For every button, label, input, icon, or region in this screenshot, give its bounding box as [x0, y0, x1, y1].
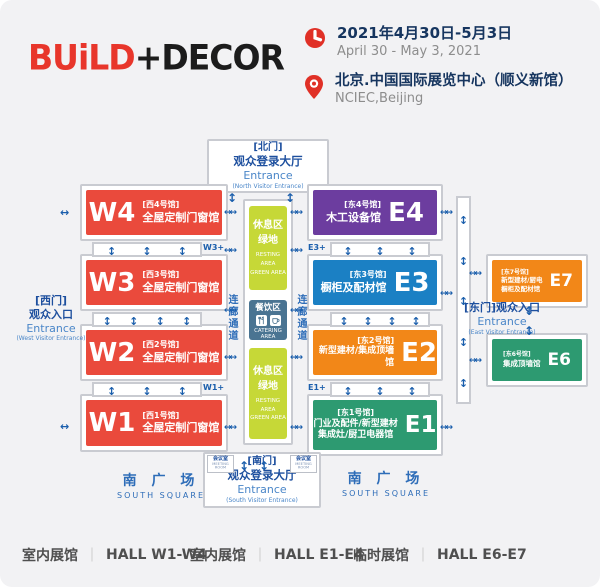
arrow-vertical-icon [524, 322, 534, 338]
hall-block-w1: W1 [西1号馆]全屋定制门窗馆 [86, 400, 222, 446]
arrow-vertical-icon [156, 310, 165, 329]
hall-block-e1: [东1号馆]门业及配件/新型建材集成灶/厨卫电器馆 E1 [313, 400, 437, 450]
hall-block-e4: [东4号馆]木工设备馆 E4 [313, 190, 437, 235]
corridor-strip-e4-e3 [330, 242, 430, 257]
rest-area-zh1: 休息区 [253, 218, 283, 233]
south-square-west: 南 广 场 SOUTH SQUARE [116, 470, 206, 500]
south-square-zh: 南 广 场 [116, 470, 206, 490]
hall-name: 橱柜及配材馆 [321, 281, 387, 295]
arrow-horizontal-icon [290, 202, 301, 218]
hall-name-line2: 橱柜及配材馆 [501, 285, 542, 293]
arrow-horizontal-icon [224, 202, 235, 218]
logo-build-text: BUiLD [28, 37, 135, 78]
event-venue-en: NCIEC,Beijing [335, 90, 573, 108]
meeting-room-left: 会议室 MEETING ROOM [207, 455, 234, 473]
rest-area-en2: GREEN AREA [250, 414, 286, 423]
arrow-horizontal-icon [440, 417, 451, 433]
cup-icon [270, 315, 281, 326]
link-label-w1: W1+ [203, 383, 224, 392]
hall-tag: [东1号馆] [313, 408, 397, 418]
corridor-strip-e3-e2 [330, 312, 430, 327]
hall-block-w3: W3 [西3号馆]全屋定制门窗馆 [86, 260, 222, 305]
arrow-vertical-icon [178, 240, 187, 259]
hall-name: 新型建材/集成顶墙馆 [313, 346, 394, 369]
corridor-strip-w4-w3 [92, 242, 202, 257]
east-gate-label: [东门]观众入口 [444, 301, 560, 315]
hall-tag: [东4号馆] [326, 200, 381, 210]
hall-code: W3 [89, 270, 136, 296]
hall-tag: [西2号馆] [142, 340, 219, 350]
arrow-horizontal-icon [469, 350, 480, 366]
arrow-vertical-icon [142, 380, 151, 399]
arrow-vertical-icon [375, 240, 384, 259]
south-entrance-sub: (South Visitor Entrance) [226, 497, 298, 505]
arrow-vertical-icon [103, 310, 112, 329]
hall-block-w2: W2 [西2号馆]全屋定制门窗馆 [86, 330, 222, 375]
catering-en: CATERING AREA [249, 328, 287, 340]
event-venue-row: 北京.中国国际展览中心（顺义新馆） NCIEC,Beijing [303, 72, 573, 108]
legend-separator: ｜ [416, 545, 430, 565]
south-square-zh: 南 广 场 [341, 468, 431, 488]
event-date-zh: 2021年4月30日-5月3日 [337, 24, 512, 43]
hall-code: E3 [394, 270, 430, 296]
west-entrance-sub: (West Visitor Entrance) [8, 335, 94, 343]
arrow-horizontal-icon [290, 240, 301, 256]
rest-area-en1: RESTING AREA [249, 251, 287, 269]
hall-block-e7: [东7号馆]新型建材/厨电橱柜及配材馆 E7 [492, 260, 582, 302]
arrow-vertical-icon [107, 380, 116, 399]
arrow-vertical-icon [411, 310, 420, 329]
legend-zh: 临时展馆 [353, 545, 409, 565]
arrow-vertical-icon [239, 457, 249, 473]
catering-zh: 餐饮区 [255, 301, 281, 313]
arrow-vertical-icon [259, 457, 269, 473]
arrow-vertical-icon [459, 372, 468, 391]
arrow-vertical-icon [407, 380, 416, 399]
arrow-horizontal-icon [290, 300, 301, 316]
logo-decor-text: +DECOR [135, 37, 284, 78]
catering-area: 餐饮区 CATERING AREA [249, 300, 287, 340]
arrow-vertical-icon [339, 310, 348, 329]
arrow-vertical-icon [459, 250, 468, 269]
arrow-vertical-icon [343, 240, 352, 259]
hall-block-w4: W4 [西4号馆]全屋定制门窗馆 [86, 190, 222, 235]
arrow-horizontal-icon [224, 240, 235, 256]
legend-item-w: 室内展馆 ｜ HALL W1-W4 [22, 545, 207, 565]
legend-en: HALL E1-E4 [274, 547, 364, 563]
hall-name: 全屋定制门窗馆 [142, 421, 219, 435]
fork-knife-icon [256, 315, 267, 326]
south-entrance-en: Entrance [237, 483, 286, 497]
meeting-room-right: 会议室 MEETING ROOM [290, 455, 317, 473]
hall-name-line2: 集成灶/厨卫电器馆 [313, 430, 397, 442]
hall-name: 全屋定制门窗馆 [142, 351, 219, 365]
arrow-horizontal-icon [60, 203, 69, 219]
arrow-horizontal-icon [290, 347, 301, 363]
hall-code: E7 [549, 273, 572, 290]
hall-name: 全屋定制门窗馆 [142, 281, 219, 295]
legend-item-temp: 临时展馆 ｜ HALL E6-E7 [353, 545, 527, 565]
legend-zh: 室内展馆 [190, 545, 246, 565]
hall-code: W4 [89, 200, 136, 226]
arrow-vertical-icon [375, 380, 384, 399]
hall-block-e6: [东6号馆]集成顶墙馆 E6 [492, 339, 582, 381]
arrow-vertical-icon [178, 380, 187, 399]
link-label-e3: E3+ [308, 243, 326, 252]
arrow-vertical-icon [459, 209, 468, 228]
arrow-vertical-icon [363, 310, 372, 329]
arrow-horizontal-icon [224, 300, 235, 316]
arrow-vertical-icon [107, 240, 116, 259]
south-square-en: SOUTH SQUARE [116, 491, 206, 500]
event-date-row: 2021年4月30日-5月3日 April 30 - May 3, 2021 [303, 24, 512, 60]
arrow-vertical-icon [343, 380, 352, 399]
rest-area-south: 休息区 绿地 RESTING AREA GREEN AREA [249, 348, 287, 439]
corridor-strip-w2-w1 [92, 382, 202, 397]
hall-tag: [东2号馆] [313, 336, 394, 346]
arrow-vertical-icon [387, 310, 396, 329]
rest-area-en1: RESTING AREA [249, 397, 287, 415]
hall-name: 新型建材/厨电 [501, 276, 542, 284]
link-label-w3: W3+ [203, 243, 224, 252]
event-venue-zh: 北京.中国国际展览中心（顺义新馆） [335, 72, 573, 90]
arrow-horizontal-icon [224, 417, 235, 433]
meeting-room-en: MEETING ROOM [209, 463, 232, 471]
west-entrance-en: Entrance [8, 322, 94, 336]
arrow-vertical-icon [182, 310, 191, 329]
south-square-en: SOUTH SQUARE [341, 489, 431, 498]
rest-area-en2: GREEN AREA [250, 269, 286, 278]
east-entrance-en: Entrance [444, 315, 560, 329]
legend-separator: ｜ [85, 545, 99, 565]
hall-tag: [西3号馆] [142, 270, 219, 280]
west-entrance: [西门] 观众入口 Entrance (West Visitor Entranc… [8, 294, 94, 343]
meeting-room-en: MEETING ROOM [292, 463, 315, 471]
arrow-vertical-icon [524, 302, 534, 318]
east-entrance-sub: (East Visitor Entrance) [444, 329, 560, 337]
hall-name: 木工设备馆 [326, 211, 381, 225]
north-hall-label: 观众登录大厅 [234, 154, 303, 168]
corridor-strip-e2-e1 [330, 382, 430, 397]
west-hall-label: 观众入口 [8, 308, 94, 322]
arrow-horizontal-icon [469, 263, 480, 279]
legend-zh: 室内展馆 [22, 545, 78, 565]
north-gate-label: [北门] [253, 142, 282, 155]
hall-name: 全屋定制门窗馆 [142, 211, 219, 225]
hall-code: E6 [548, 352, 571, 369]
brand-logo: BUiLD+DECOR [28, 37, 284, 78]
arrow-horizontal-icon [440, 283, 451, 299]
west-gate-label: [西门] [8, 294, 94, 308]
hall-code: E2 [401, 340, 437, 366]
corridor-strip-w3-w2 [92, 312, 202, 327]
arrow-horizontal-icon [224, 347, 235, 363]
location-pin-icon [303, 74, 325, 104]
exhibition-map-page: BUiLD+DECOR 2021年4月30日-5月3日 April 30 - M… [0, 0, 600, 587]
hall-code: W2 [89, 340, 136, 366]
legend-item-e: 室内展馆 ｜ HALL E1-E4 [190, 545, 364, 565]
rest-area-zh2: 绿地 [258, 233, 278, 248]
north-entrance-en: Entrance [243, 169, 292, 183]
arrow-vertical-icon [407, 240, 416, 259]
hall-tag: [西4号馆] [142, 200, 219, 210]
rest-area-zh1: 休息区 [253, 364, 283, 379]
clock-icon [303, 26, 327, 54]
arrow-vertical-icon [142, 240, 151, 259]
hall-name: 门业及配件/新型建材 [313, 419, 397, 431]
arrow-horizontal-icon [440, 202, 451, 218]
corridor-strip-east [456, 196, 471, 404]
legend-en: HALL E6-E7 [437, 547, 527, 563]
south-square-east: 南 广 场 SOUTH SQUARE [341, 468, 431, 498]
arrow-vertical-icon [129, 310, 138, 329]
event-date-en: April 30 - May 3, 2021 [337, 43, 512, 61]
rest-area-zh2: 绿地 [258, 379, 278, 394]
hall-name: 集成顶墙馆 [503, 359, 541, 369]
hall-block-e3: [东3号馆]橱柜及配材馆 E3 [313, 260, 437, 305]
legend-separator: ｜ [253, 545, 267, 565]
hall-code: E4 [388, 200, 424, 226]
east-entrance: [东门]观众入口 Entrance (East Visitor Entrance… [444, 301, 560, 336]
arrow-horizontal-icon [60, 417, 69, 433]
rest-area-north: 休息区 绿地 RESTING AREA GREEN AREA [249, 206, 287, 290]
link-label-e1: E1+ [308, 383, 326, 392]
hall-tag: [东6号馆] [503, 351, 541, 359]
hall-block-e2: [东2号馆]新型建材/集成顶墙馆 E2 [313, 330, 437, 375]
hall-code: E1 [405, 414, 437, 437]
hall-tag: [西1号馆] [142, 411, 219, 421]
arrow-horizontal-icon [290, 417, 301, 433]
hall-tag: [东3号馆] [321, 270, 387, 280]
hall-code: W1 [89, 410, 136, 436]
